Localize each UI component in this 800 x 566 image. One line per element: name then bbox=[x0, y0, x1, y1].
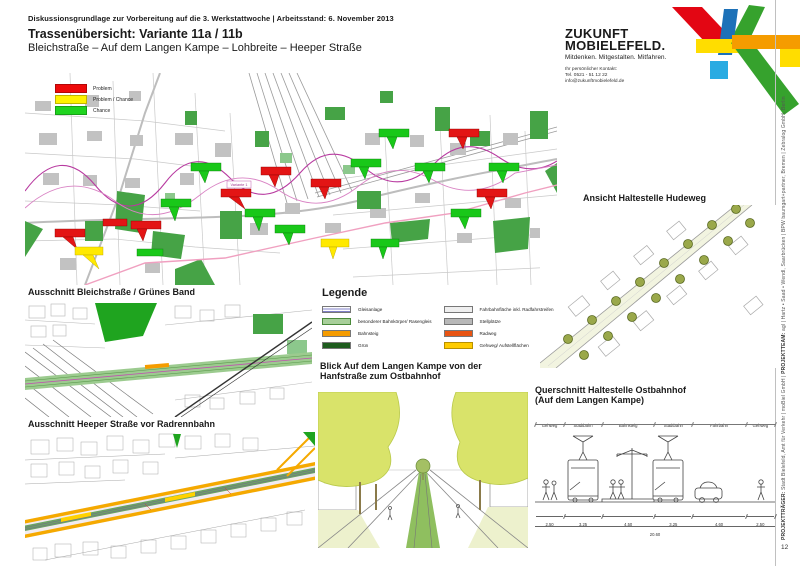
swatch-gleisanlage bbox=[322, 306, 351, 313]
legende-column-left: Gleisanlage besonderer Bahnkörper/ Rasen… bbox=[322, 305, 432, 349]
section-title-line: Blick Auf dem Langen Kampe von der bbox=[320, 361, 530, 371]
green-area bbox=[253, 314, 283, 334]
swatch-stellplaetze bbox=[444, 318, 473, 325]
legende-label: Gehweg/ Aufstellflächen bbox=[480, 343, 529, 348]
zone: Gehweg bbox=[535, 414, 564, 426]
page-number: 12 bbox=[781, 544, 788, 551]
legend-item: Problem / Chance bbox=[55, 94, 133, 105]
tram bbox=[653, 436, 683, 502]
credits-role: PROJEKTTRÄGER: bbox=[781, 492, 787, 541]
zone: Gehweg bbox=[746, 414, 775, 426]
swatch-bahnsteig bbox=[322, 330, 351, 337]
header-meta: Diskussionsgrundlage zur Vorbereitung au… bbox=[28, 14, 548, 23]
legende-item: Grün bbox=[322, 341, 432, 349]
legend-item: Problem bbox=[55, 83, 133, 94]
variant-tag: Variante 1 bbox=[227, 181, 251, 188]
page-title: Trassenübersicht: Variante 11a / 11b bbox=[28, 27, 548, 41]
total-dimension-value: 20.60 bbox=[648, 532, 662, 537]
zone-label: Gehweg bbox=[542, 423, 558, 428]
dimension: 4.60 bbox=[692, 512, 746, 520]
section-title-line: (Auf dem Langen Kampe) bbox=[535, 395, 770, 405]
legende-item: Stellplätze bbox=[444, 317, 554, 325]
green-area bbox=[287, 340, 307, 354]
swatch-gehweg bbox=[444, 342, 473, 349]
legende-label: Fahrbahnfläche inkl. Radfahrstreifen bbox=[480, 307, 554, 312]
legende-item: besonderer Bahnkörper/ Rasengleis bbox=[322, 317, 432, 325]
legend-swatch-chance bbox=[55, 106, 87, 115]
section-title-bleichstrasse: Ausschnitt Bleichstraße / Grünes Band bbox=[28, 287, 195, 297]
legend-item: Chance bbox=[55, 105, 133, 116]
credits-text: agl | Hartz • Saad • Wendl, Saarbrücken … bbox=[781, 96, 787, 331]
legende-panel: Legende Gleisanlage besonderer Bahnkörpe… bbox=[322, 287, 537, 349]
bleichstrasse-map bbox=[25, 300, 312, 417]
zone-label: Fahrbahn bbox=[710, 423, 728, 428]
legend-swatch-problem-chance bbox=[55, 95, 87, 104]
section-title-line: Querschnitt Haltestelle Ostbahnhof bbox=[535, 385, 770, 395]
cross-section-drawing bbox=[535, 430, 775, 510]
tree-canopy-left bbox=[318, 392, 400, 487]
zone: Stadtbahn bbox=[564, 414, 602, 426]
section-title-heeper: Ausschnitt Heeper Straße vor Radrennbahn bbox=[28, 419, 215, 429]
legende-item: Bahnsteig bbox=[322, 329, 432, 337]
legende-column-right: Fahrbahnfläche inkl. Radfahrstreifen Ste… bbox=[444, 305, 554, 349]
swatch-radweg bbox=[444, 330, 473, 337]
dimension: 3.25 bbox=[654, 512, 692, 520]
zone-label: Bahnsteig bbox=[619, 423, 638, 428]
section-title-hudeweg: Ansicht Haltestelle Hudeweg bbox=[583, 193, 706, 203]
legend-swatch-problem bbox=[55, 84, 87, 93]
hudeweg-plan-view bbox=[540, 205, 780, 368]
legende-item: Radweg bbox=[444, 329, 554, 337]
legend-label: Problem / Chance bbox=[93, 97, 133, 103]
legende-label: Grün bbox=[358, 343, 368, 348]
project-credits: PROJEKTTRÄGER: Stadt Bielefeld, Amt für … bbox=[781, 140, 787, 540]
legend-label: Chance bbox=[93, 108, 110, 114]
zone: Bahnsteig bbox=[602, 414, 654, 426]
legende-label: Stellplätze bbox=[480, 319, 501, 324]
zone-label: Gehweg bbox=[753, 423, 769, 428]
zone-label: Stadtbahn bbox=[664, 423, 683, 428]
zone: Stadtbahn bbox=[654, 414, 692, 426]
swatch-rasengleis bbox=[322, 318, 351, 325]
tram bbox=[568, 436, 598, 502]
tree-canopy-right bbox=[452, 392, 528, 485]
section-title-line: Hanfstraße zum Ostbahnhof bbox=[320, 371, 530, 381]
legende-item: Gehweg/ Aufstellflächen bbox=[444, 341, 554, 349]
brand-name: MOBIELEFELD. bbox=[565, 40, 685, 52]
zone-label: Stadtbahn bbox=[574, 423, 593, 428]
section-title-querschnitt: Querschnitt Haltestelle Ostbahnhof (Auf … bbox=[535, 385, 770, 405]
shelter-mast bbox=[617, 448, 647, 499]
swatch-fahrbahn bbox=[444, 306, 473, 313]
zone: Fahrbahn bbox=[692, 414, 746, 426]
brand-email: info@zukunftmobielefeld.de bbox=[565, 79, 685, 85]
brand-tagline: Mitdenken. Mitgestalten. Mitfahren. bbox=[565, 54, 685, 61]
brand-block: ZUKUNFT MOBIELEFELD. Mitdenken. Mitgesta… bbox=[565, 28, 685, 85]
dimension: 2.50 bbox=[746, 512, 775, 520]
legend-label: Problem bbox=[93, 86, 112, 92]
document-page: Diskussionsgrundlage zur Vorbereitung au… bbox=[0, 0, 800, 566]
legende-label: besonderer Bahnkörper/ Rasengleis bbox=[358, 319, 432, 324]
overview-map-legend: Problem Problem / Chance Chance bbox=[55, 83, 133, 116]
header: Diskussionsgrundlage zur Vorbereitung au… bbox=[28, 14, 548, 54]
street-perspective-sketch bbox=[318, 392, 528, 548]
legende-columns: Gleisanlage besonderer Bahnkörper/ Rasen… bbox=[322, 305, 537, 349]
dimension: 4.50 bbox=[602, 512, 654, 520]
legende-label: Bahnsteig bbox=[358, 331, 378, 336]
credits-role: PROJEKTTEAM: bbox=[781, 333, 787, 374]
credits-text: Stadt Bielefeld, Amt für Verkehr | moBie… bbox=[781, 375, 787, 490]
heeper-strasse-map bbox=[25, 432, 315, 562]
legende-item: Fahrbahnfläche inkl. Radfahrstreifen bbox=[444, 305, 554, 313]
platform-edge bbox=[602, 499, 654, 502]
cross-section-zone-labels: Gehweg Stadtbahn Bahnsteig Stadtbahn Fah… bbox=[535, 414, 775, 426]
dimension: 3.25 bbox=[564, 512, 602, 520]
page-subtitle: Bleichstraße – Auf dem Langen Kampe – Lo… bbox=[28, 42, 548, 54]
legende-label: Radweg bbox=[480, 331, 497, 336]
legende-title: Legende bbox=[322, 287, 537, 299]
platform-people bbox=[609, 480, 625, 499]
car bbox=[695, 482, 722, 502]
variant-tag-label: Variante 1 bbox=[230, 183, 247, 187]
dimension: 2.50 bbox=[535, 512, 564, 520]
section-title-blick: Blick Auf dem Langen Kampe von der Hanfs… bbox=[320, 361, 530, 381]
cross-section-total-dimension: 20.60 bbox=[535, 522, 775, 530]
legende-item: Gleisanlage bbox=[322, 305, 432, 313]
legende-label: Gleisanlage bbox=[358, 307, 382, 312]
swatch-gruen bbox=[322, 342, 351, 349]
cross-section-dimensions: 2.50 3.25 4.50 3.25 4.60 2.50 bbox=[535, 512, 775, 520]
distant-tree bbox=[416, 459, 430, 473]
